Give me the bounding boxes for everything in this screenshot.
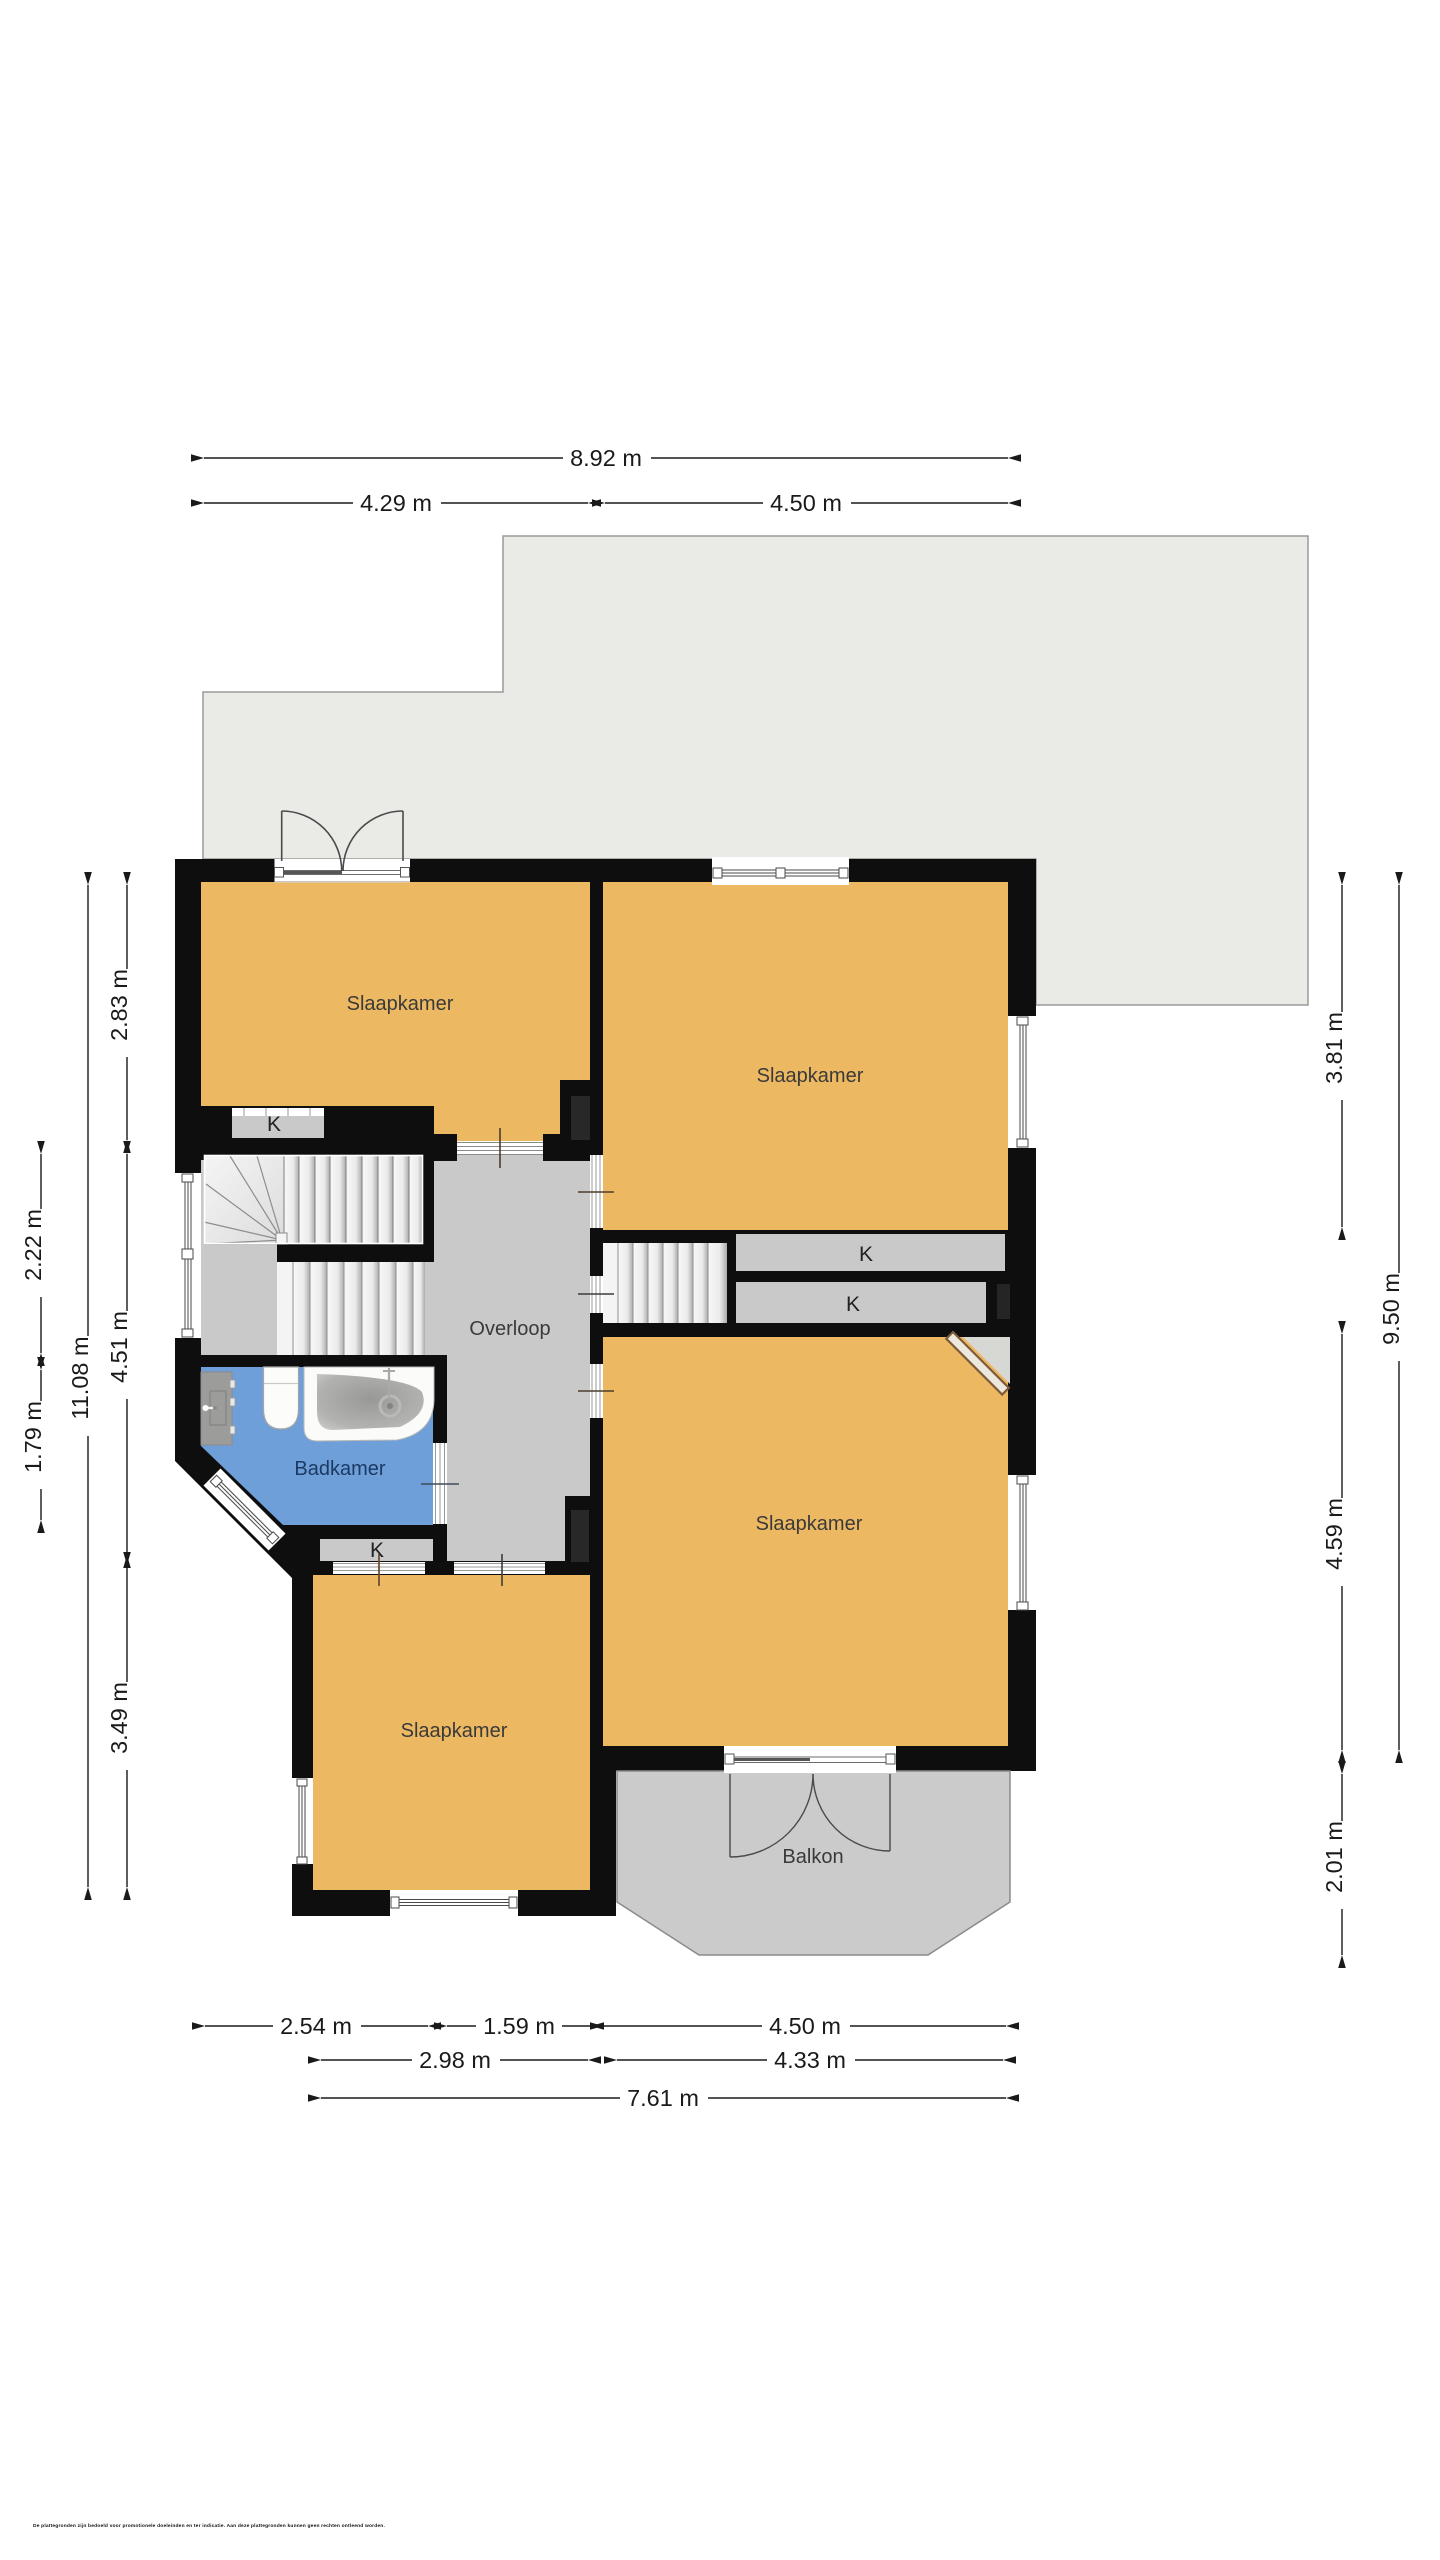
svg-text:Slaapkamer: Slaapkamer <box>347 993 454 1015</box>
svg-text:4.50 m: 4.50 m <box>769 2013 841 2039</box>
svg-text:K: K <box>267 1113 281 1136</box>
svg-text:2.54 m: 2.54 m <box>280 2013 352 2039</box>
svg-text:8.92 m: 8.92 m <box>570 445 642 471</box>
svg-text:2.01 m: 2.01 m <box>1321 1821 1347 1893</box>
svg-text:Slaapkamer: Slaapkamer <box>757 1065 864 1087</box>
svg-text:De plattegronden zijn bedoeld: De plattegronden zijn bedoeld voor promo… <box>33 2523 385 2529</box>
svg-text:4.33 m: 4.33 m <box>774 2047 846 2073</box>
svg-text:4.29 m: 4.29 m <box>360 490 432 516</box>
svg-text:Slaapkamer: Slaapkamer <box>401 1720 508 1742</box>
svg-text:Overloop: Overloop <box>469 1318 550 1340</box>
svg-text:4.59 m: 4.59 m <box>1321 1498 1347 1570</box>
svg-text:Slaapkamer: Slaapkamer <box>756 1513 863 1535</box>
svg-text:1.79 m: 1.79 m <box>20 1401 46 1473</box>
svg-text:3.81 m: 3.81 m <box>1321 1012 1347 1084</box>
svg-text:11.08 m: 11.08 m <box>67 1336 93 1419</box>
svg-text:K: K <box>859 1243 873 1266</box>
svg-text:2.98 m: 2.98 m <box>419 2047 491 2073</box>
svg-text:4.51 m: 4.51 m <box>106 1311 132 1383</box>
svg-text:Balkon: Balkon <box>782 1846 843 1868</box>
svg-text:Badkamer: Badkamer <box>294 1458 385 1480</box>
svg-text:K: K <box>370 1539 384 1562</box>
svg-text:2.22 m: 2.22 m <box>20 1209 46 1281</box>
svg-text:9.50 m: 9.50 m <box>1378 1273 1404 1345</box>
svg-text:3.49 m: 3.49 m <box>106 1682 132 1754</box>
svg-text:2.83 m: 2.83 m <box>106 969 132 1041</box>
svg-text:4.50 m: 4.50 m <box>770 490 842 516</box>
svg-text:K: K <box>846 1293 860 1316</box>
svg-text:7.61 m: 7.61 m <box>627 2085 699 2111</box>
svg-text:1.59 m: 1.59 m <box>483 2013 555 2039</box>
